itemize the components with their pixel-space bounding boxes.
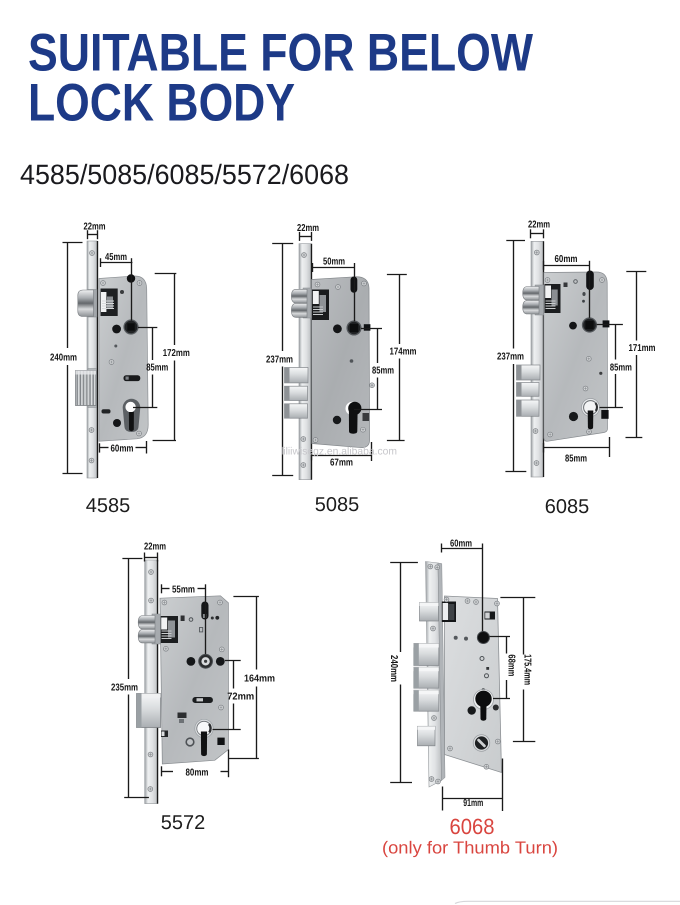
svg-text:85mm: 85mm [565,453,587,464]
svg-text:85mm: 85mm [372,366,394,377]
svg-text:237mm: 237mm [266,355,293,366]
svg-text:4585: 4585 [86,495,131,517]
svg-text:50mm: 50mm [323,256,345,267]
svg-text:174mm: 174mm [390,347,417,358]
svg-text:164mm: 164mm [244,674,275,685]
svg-text:172mm: 172mm [163,348,190,359]
svg-text:6068: 6068 [450,814,495,839]
svg-text:240mm: 240mm [50,353,77,364]
svg-text:22mm: 22mm [528,220,550,231]
svg-text:60mm: 60mm [111,443,134,454]
svg-text:85mm: 85mm [146,363,168,374]
svg-text:22mm: 22mm [144,542,166,553]
svg-text:60mm: 60mm [555,254,578,265]
svg-text:67mm: 67mm [330,457,353,468]
svg-text:80mm: 80mm [186,767,209,778]
svg-text:235mm: 235mm [111,683,138,694]
svg-text:55mm: 55mm [172,584,195,595]
svg-text:72mm: 72mm [227,692,254,703]
svg-text:22mm: 22mm [84,222,106,233]
svg-text:240mm: 240mm [388,655,399,682]
svg-text:LOCK BODY: LOCK BODY [28,74,295,133]
svg-text:6085: 6085 [545,496,590,518]
svg-text:4585/5085/6085/5572/6068: 4585/5085/6085/5572/6068 [20,159,349,190]
svg-text:liliiwisegz.en.alibaba.com: liliiwisegz.en.alibaba.com [281,446,397,458]
svg-text:175.4mm: 175.4mm [521,654,532,685]
svg-text:45mm: 45mm [105,252,127,263]
svg-text:237mm: 237mm [497,352,524,363]
svg-text:85mm: 85mm [610,363,632,374]
svg-text:5085: 5085 [315,494,360,516]
svg-text:22mm: 22mm [297,223,319,234]
svg-text:91mm: 91mm [463,798,483,809]
svg-text:(only for Thumb Turn): (only for Thumb Turn) [382,838,558,858]
svg-text:68mm: 68mm [505,654,516,676]
svg-text:5572: 5572 [161,812,206,834]
svg-text:171mm: 171mm [629,343,656,354]
